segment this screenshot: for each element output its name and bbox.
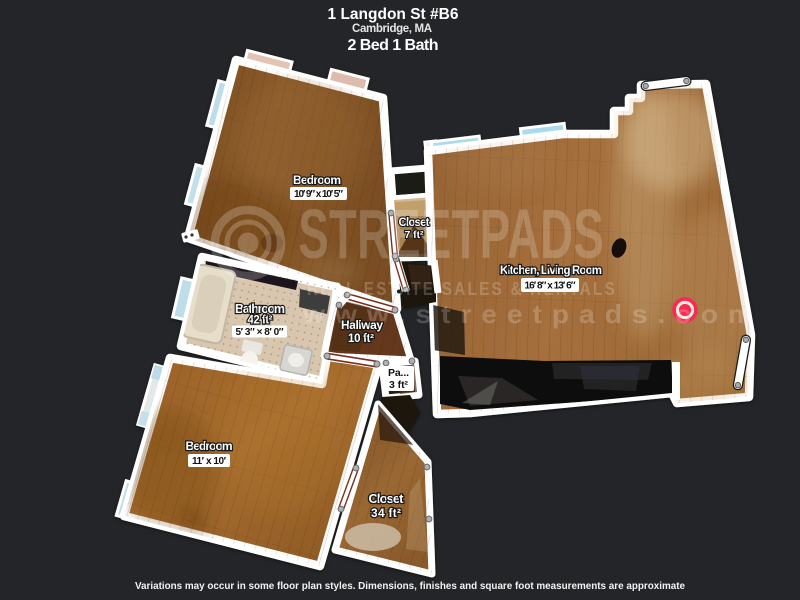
svg-text:10 ft²: 10 ft² [348, 333, 374, 345]
svg-text:STREETPADS: STREETPADS [298, 195, 604, 273]
svg-text:5′ 3″ × 8′ 0″: 5′ 3″ × 8′ 0″ [236, 327, 284, 338]
svg-text:Bedroom: Bedroom [186, 439, 233, 453]
svg-text:3 ft²: 3 ft² [389, 379, 409, 391]
svg-text:1 Langdon St #B6: 1 Langdon St #B6 [328, 6, 459, 23]
svg-text:11′ x 10′: 11′ x 10′ [192, 456, 227, 467]
svg-text:Hallway: Hallway [341, 318, 383, 332]
svg-text:16′ 8″ x 13′ 6″: 16′ 8″ x 13′ 6″ [525, 281, 576, 292]
svg-text:Closet: Closet [369, 491, 405, 506]
svg-text:34 ft²: 34 ft² [371, 506, 401, 520]
svg-text:Cambridge, MA: Cambridge, MA [352, 23, 432, 35]
svg-text:Kitchen, Living Room: Kitchen, Living Room [500, 265, 602, 277]
svg-text:Closet: Closet [399, 217, 430, 229]
svg-text:10′ 9″ x 10′ 5″: 10′ 9″ x 10′ 5″ [294, 189, 343, 200]
svg-text:7 ft²: 7 ft² [405, 229, 425, 241]
svg-text:42 ft²: 42 ft² [248, 315, 273, 327]
svg-text:Variations may occur in some f: Variations may occur in some floor plan … [135, 581, 685, 592]
svg-text:2 Bed 1 Bath: 2 Bed 1 Bath [348, 37, 439, 54]
svg-text:Pa...: Pa... [388, 367, 409, 379]
svg-text:Bedroom: Bedroom [293, 173, 341, 187]
